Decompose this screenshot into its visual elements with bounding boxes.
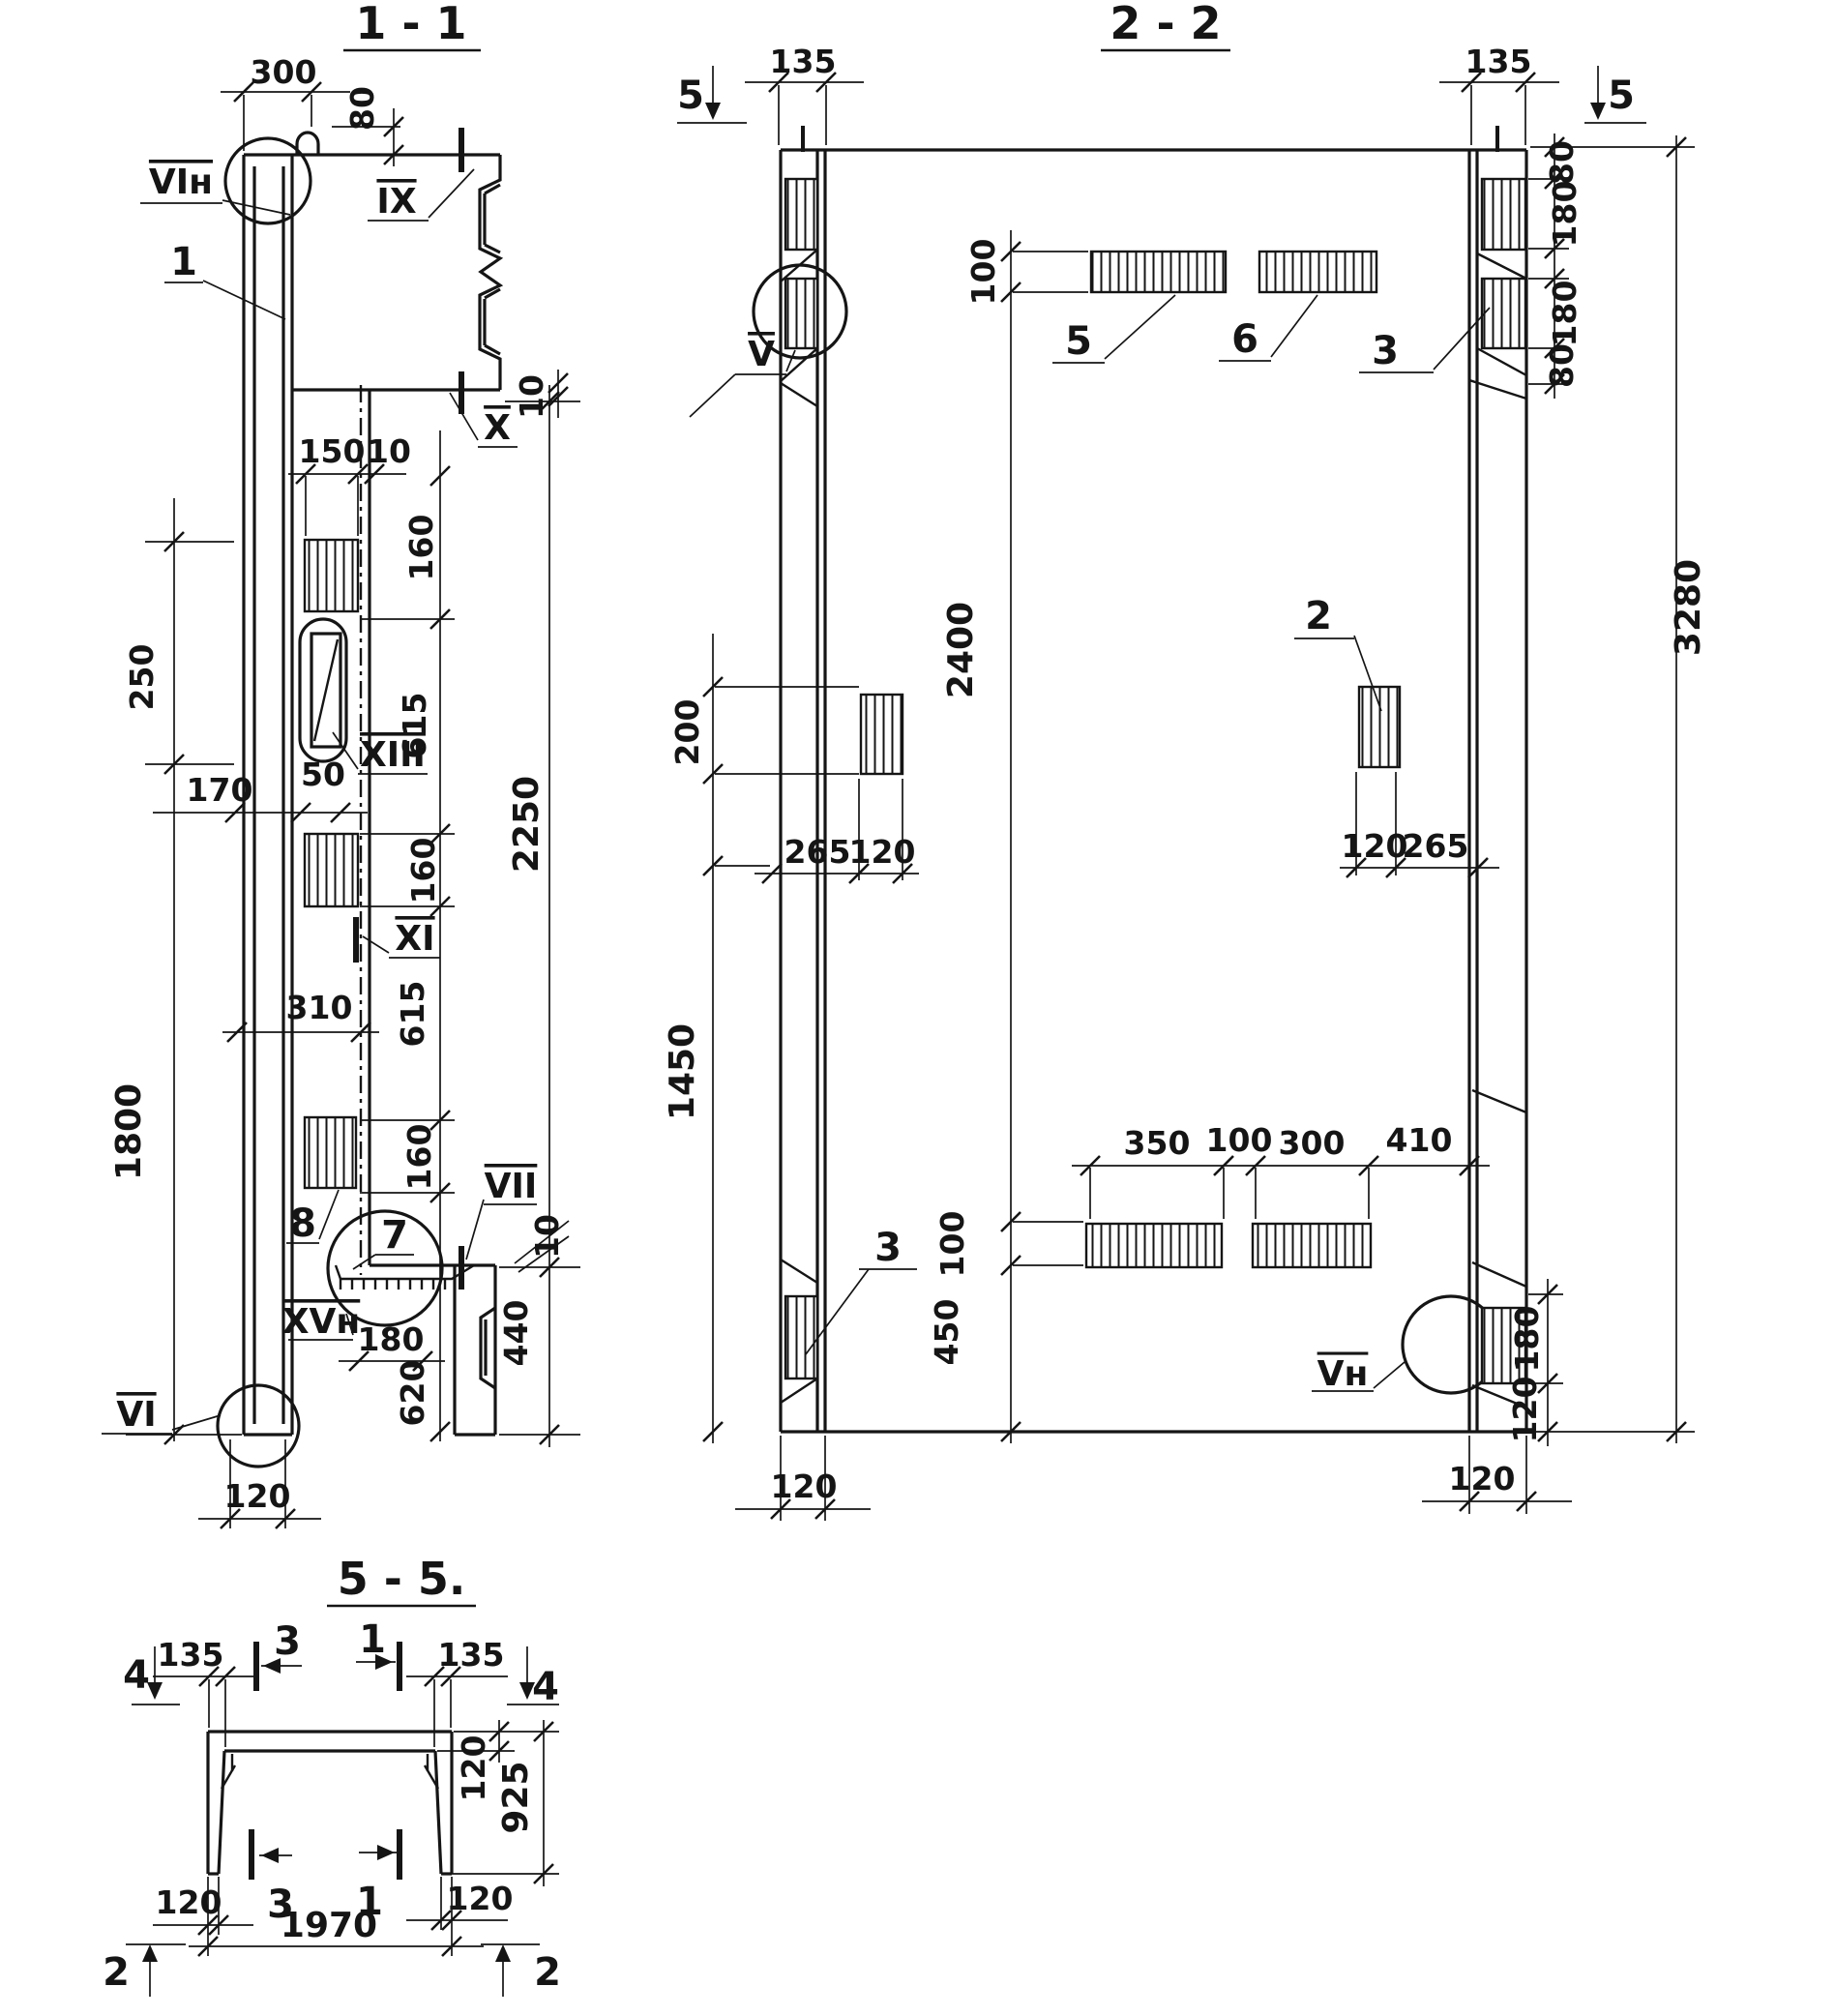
s11-detail-vi: VI <box>116 1395 156 1435</box>
s55-marker-3-top: 3 <box>274 1619 301 1664</box>
s11-dim-10-top: 10 <box>513 374 550 419</box>
s11-dim-250: 250 <box>123 644 161 711</box>
s11-dim-440: 440 <box>497 1300 535 1367</box>
s11-dim-615b: 615 <box>394 981 431 1048</box>
s22-dim-180-bot: 180 <box>1508 1306 1546 1373</box>
s22-dim-135-right: 135 <box>1465 43 1532 80</box>
section-5-5: 5 - 5. 3 1 4 4 135 135 120 925 120 120 3… <box>103 1553 561 1997</box>
s11-item-8: 8 <box>289 1201 316 1246</box>
s22-dim-120-col-right: 120 <box>1449 1460 1516 1497</box>
s11-item-1: 1 <box>170 240 197 284</box>
s11-dim-310: 310 <box>286 989 353 1026</box>
s22-dim-180-top2: 180 <box>1546 281 1583 347</box>
s22-item-2: 2 <box>1305 594 1332 638</box>
s55-marker-2-right: 2 <box>534 1950 561 1995</box>
s11-dim-50: 50 <box>301 756 345 793</box>
s11-dim-170: 170 <box>187 771 253 809</box>
s22-dim-100-top: 100 <box>964 239 1002 306</box>
s22-dim-80-top2: 80 <box>1543 343 1581 388</box>
s22-dim-265-left: 265 <box>784 833 851 871</box>
s55-marker-4-left: 4 <box>123 1653 150 1698</box>
s22-dim-100-strip: 100 <box>1206 1121 1273 1159</box>
s11-detail-vin: VIн <box>149 163 213 202</box>
s11-detail-xi: XI <box>395 919 434 959</box>
s22-anchor-bars <box>803 126 1497 152</box>
s22-dim-100-bot: 100 <box>933 1211 971 1278</box>
drawing-canvas: 1 - 1 300 80 VIн IX 1 10 X 150 10 160 61… <box>0 0 1835 2016</box>
s11-dim-160b: 160 <box>404 838 442 904</box>
s11-dim-10-bot: 10 <box>528 1214 566 1259</box>
s55-corner-marks <box>222 1754 438 1789</box>
s22-marker-5-right: 5 <box>1608 74 1635 118</box>
s11-dim-80: 80 <box>343 86 381 131</box>
s11-dim-160c: 160 <box>400 1124 438 1191</box>
s55-dim-925: 925 <box>496 1761 536 1833</box>
s11-detail-xiii: XIII <box>360 735 426 775</box>
s11-dim-1800: 1800 <box>109 1083 149 1180</box>
s11-detail-x: X <box>484 408 511 448</box>
s22-detail-v: V <box>748 335 775 374</box>
s55-dim-120-top: 120 <box>455 1735 492 1802</box>
s55-dim-120-bot-right: 120 <box>447 1880 514 1917</box>
s22-dim-120-left: 120 <box>849 833 916 871</box>
s22-dim-350: 350 <box>1124 1124 1191 1162</box>
s22-dim-135-left: 135 <box>770 43 837 80</box>
s22-dim-450: 450 <box>928 1299 965 1366</box>
s22-dim-180-top1: 180 <box>1546 181 1583 248</box>
s11-outline <box>218 133 500 1467</box>
s11-dim-620: 620 <box>394 1360 431 1427</box>
s22-dim-120-bot: 120 <box>1506 1377 1544 1443</box>
s11-detail-xvn: XVн <box>282 1302 361 1342</box>
s22-dim-2400: 2400 <box>941 602 981 698</box>
s22-title: 2 - 2 <box>1110 0 1221 49</box>
s55-marker-1-top: 1 <box>359 1617 386 1662</box>
s22-item-5: 5 <box>1065 319 1092 364</box>
s55-dim-1970: 1970 <box>281 1906 377 1945</box>
s22-dim-120-right: 120 <box>1342 827 1408 865</box>
s11-dim-120: 120 <box>224 1477 291 1515</box>
s55-marker-4-right: 4 <box>532 1665 559 1709</box>
s11-item-7: 7 <box>381 1213 408 1258</box>
s11-title: 1 - 1 <box>355 0 466 49</box>
s55-marker-2-left: 2 <box>103 1950 130 1995</box>
drawing-sheet: 1 - 1 300 80 VIн IX 1 10 X 150 10 160 61… <box>0 0 1835 2016</box>
section-1-1: 1 - 1 300 80 VIн IX 1 10 X 150 10 160 61… <box>102 0 580 1528</box>
s22-dim-120-col-left: 120 <box>771 1468 838 1505</box>
s55-dim-120-bot-left: 120 <box>156 1883 222 1921</box>
s11-dim-10-mid: 10 <box>367 432 411 470</box>
s22-embedded-plates <box>785 179 1525 1383</box>
section-2-2: 2 - 2 5 5 135 135 80 180 180 80 3280 100… <box>663 0 1708 1521</box>
s22-dim-410: 410 <box>1386 1121 1453 1159</box>
s22-dim-3280: 3280 <box>1669 559 1708 656</box>
s55-outline <box>208 1732 452 1874</box>
s22-dim-265-right: 265 <box>1403 827 1469 865</box>
s11-detail-vii: VII <box>485 1167 538 1206</box>
s22-marker-5-left: 5 <box>677 74 704 118</box>
s55-dim-135-right: 135 <box>438 1636 505 1674</box>
s22-dim-80-top1: 80 <box>1543 140 1581 185</box>
s22-item-6: 6 <box>1231 317 1258 362</box>
s22-dim-1450: 1450 <box>663 1023 702 1120</box>
s22-detail-vn: Vн <box>1317 1354 1369 1394</box>
s55-dim-135-left: 135 <box>158 1636 224 1674</box>
s55-section-bars <box>252 1642 400 1880</box>
s22-dim-300: 300 <box>1279 1124 1346 1162</box>
s55-title: 5 - 5. <box>338 1553 466 1605</box>
s22-item-3-bot: 3 <box>874 1226 902 1270</box>
s11-dim-150: 150 <box>299 432 366 470</box>
s11-dim-2250: 2250 <box>507 776 547 873</box>
s11-dim-300: 300 <box>251 53 317 91</box>
s22-item-3-top: 3 <box>1372 329 1399 373</box>
s11-detail-ix: IX <box>376 182 416 222</box>
s22-dim-200: 200 <box>668 699 706 766</box>
s11-dim-160a: 160 <box>402 515 440 581</box>
s11-dim-180: 180 <box>358 1320 425 1358</box>
